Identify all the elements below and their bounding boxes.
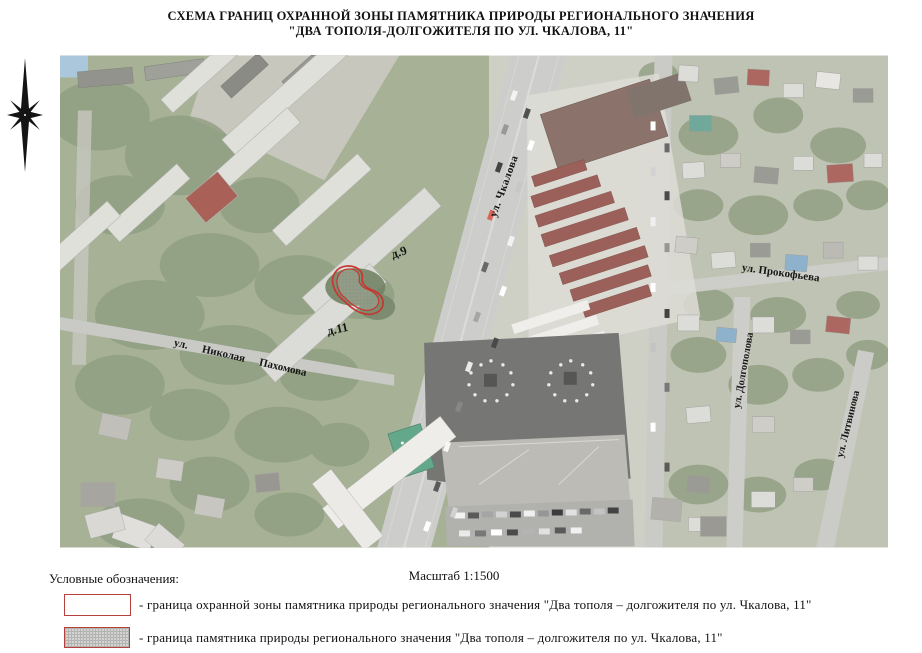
legend-swatch-monument	[64, 627, 130, 648]
legend-item-protection-zone: - граница охранной зоны памятника природ…	[139, 597, 812, 613]
legend-heading: Условные обозначения:	[49, 571, 179, 587]
title-line-1: СХЕМА ГРАНИЦ ОХРАННОЙ ЗОНЫ ПАМЯТНИКА ПРИ…	[0, 9, 922, 24]
scale-label: Масштаб 1:1500	[354, 568, 554, 584]
page-title: СХЕМА ГРАНИЦ ОХРАННОЙ ЗОНЫ ПАМЯТНИКА ПРИ…	[0, 9, 922, 39]
legend-item-monument: - граница памятника природы региональног…	[139, 630, 723, 646]
title-line-2: "ДВА ТОПОЛЯ-ДОЛГОЖИТЕЛЯ ПО УЛ. ЧКАЛОВА, …	[0, 24, 922, 39]
aerial-map: ул. Чкалова ул. Прокофьева ул. Николая П…	[60, 55, 888, 548]
north-arrow-icon	[4, 56, 46, 174]
legend-swatch-protection-zone	[64, 594, 131, 616]
